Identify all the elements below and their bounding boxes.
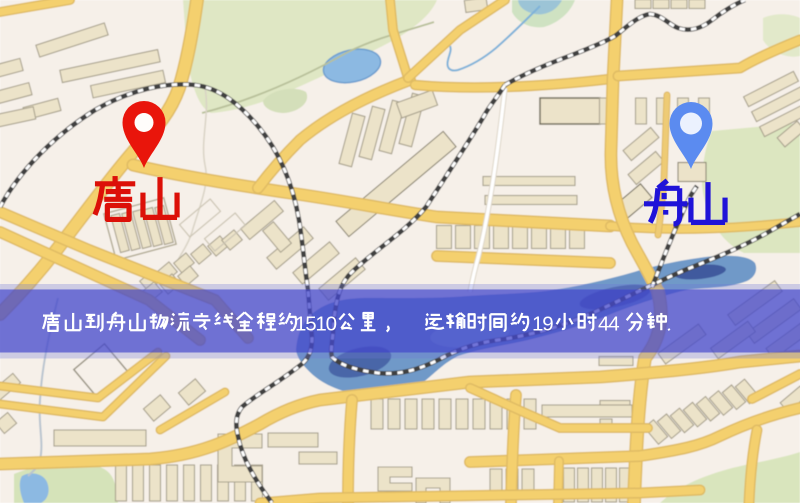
svg-text:44: 44 (598, 313, 619, 336)
svg-text:1510: 1510 (295, 313, 337, 336)
svg-text:19: 19 (532, 313, 553, 336)
